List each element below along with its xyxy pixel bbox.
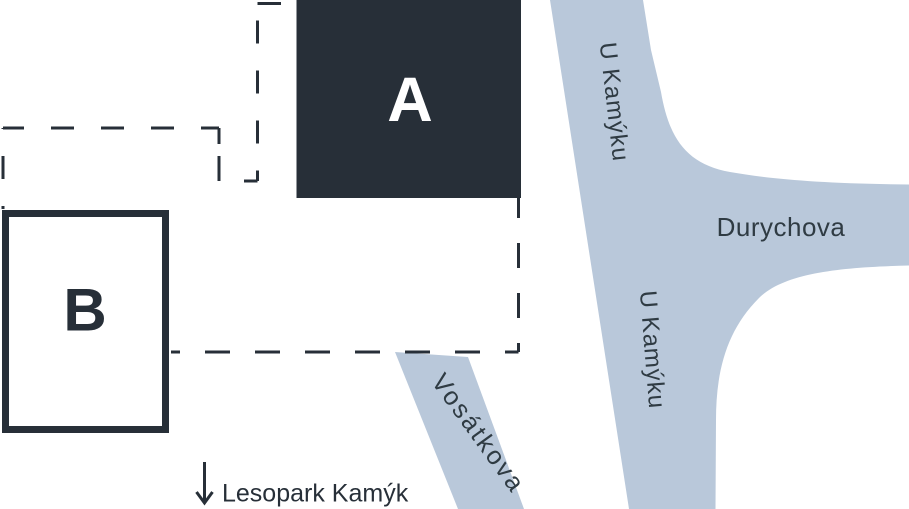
svg-text:Durychova: Durychova: [717, 212, 846, 242]
svg-text:Lesopark Kamýk: Lesopark Kamýk: [222, 480, 409, 508]
svg-text:A: A: [387, 65, 433, 135]
svg-text:B: B: [63, 277, 106, 344]
